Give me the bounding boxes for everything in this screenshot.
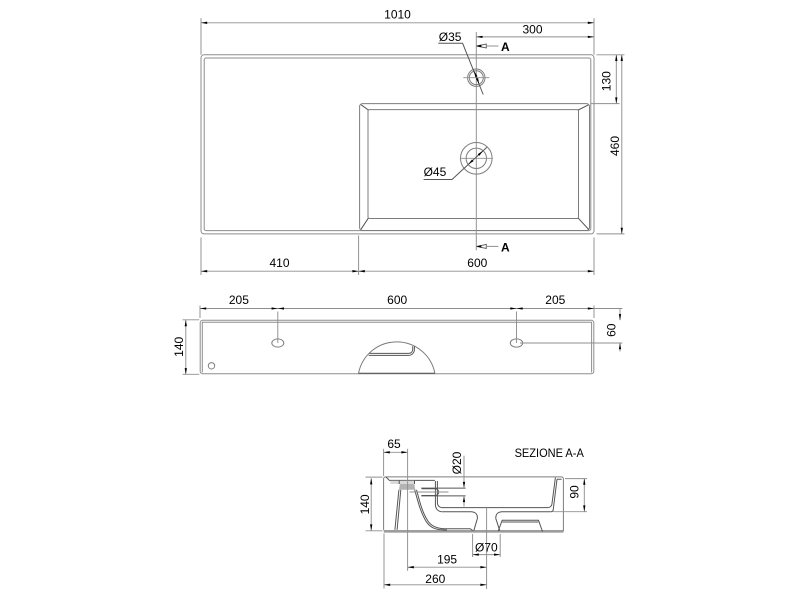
svg-text:A: A (501, 40, 510, 54)
svg-text:130: 130 (599, 71, 613, 91)
svg-text:60: 60 (604, 323, 618, 337)
svg-text:Ø70: Ø70 (475, 540, 498, 554)
svg-text:A: A (501, 240, 510, 254)
svg-text:205: 205 (545, 293, 565, 307)
svg-text:195: 195 (437, 552, 457, 566)
svg-text:Ø20: Ø20 (450, 451, 464, 474)
svg-text:205: 205 (229, 293, 249, 307)
svg-text:140: 140 (358, 494, 372, 514)
svg-text:410: 410 (269, 256, 289, 270)
svg-text:65: 65 (387, 437, 401, 451)
svg-text:Ø35: Ø35 (439, 30, 462, 44)
svg-text:300: 300 (522, 23, 542, 37)
svg-text:600: 600 (387, 293, 407, 307)
svg-text:SEZIONE A-A: SEZIONE A-A (515, 448, 585, 460)
svg-text:600: 600 (467, 256, 487, 270)
svg-text:140: 140 (172, 336, 186, 356)
svg-text:90: 90 (568, 485, 582, 499)
svg-text:260: 260 (425, 572, 445, 586)
svg-text:1010: 1010 (384, 7, 411, 21)
svg-text:Ø45: Ø45 (424, 165, 447, 179)
svg-text:460: 460 (608, 136, 622, 156)
